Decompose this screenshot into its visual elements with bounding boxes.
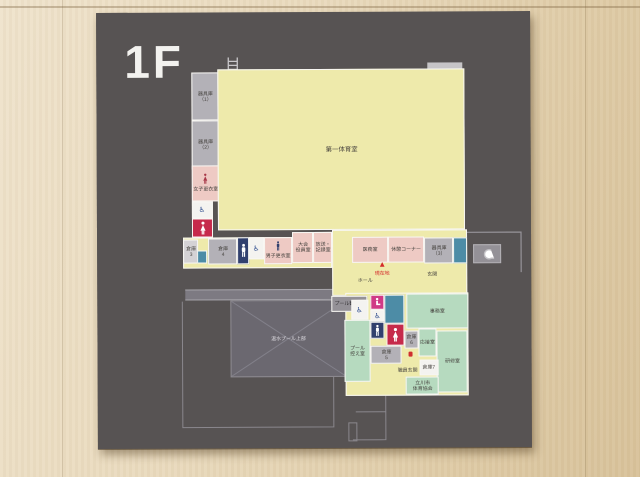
room-broadcast: 放送・記録室 [313, 232, 332, 263]
male-icon [374, 324, 380, 336]
male-icon [275, 241, 281, 251]
room-office: 事務室 [406, 293, 468, 328]
hall-label: ホール [358, 277, 373, 283]
wall-seam-left [62, 0, 63, 477]
room-mens-locker: 男子更衣室 [264, 237, 292, 264]
female-icon [198, 221, 206, 235]
stairs-block-east [453, 237, 467, 263]
accessible-toilet-south: ♿ [249, 237, 264, 259]
you-are-here-marker: ▲ 現在地 [369, 261, 395, 278]
room-equipment-3: 器具庫（3） [424, 237, 453, 263]
womens-toilet-west [192, 218, 213, 237]
you-are-here-triangle: ▲ [378, 261, 386, 269]
staff-entrance-label: 職員玄関 [398, 367, 418, 373]
room-storage-5: 倉庫5 [371, 346, 402, 364]
entrance-label: 玄関 [427, 271, 437, 277]
pool-upper-void: 温水プール上部 [230, 300, 346, 378]
pool-upper-label: 温水プール上部 [271, 336, 306, 342]
floor-label: 1F [124, 35, 184, 89]
wheelchair-icon: ♿ [357, 306, 363, 313]
room-equipment-1: 器具庫（1） [191, 72, 218, 120]
room-training: 研修室 [436, 330, 467, 392]
wheelchair-icon: ♿ [253, 245, 259, 252]
wall-seam-horizontal [0, 6, 640, 8]
room-rest-corner: 休憩コーナー [388, 237, 424, 263]
room-storage-6: 倉庫6 [404, 331, 418, 349]
you-are-here-label: 現在地 [375, 270, 390, 276]
room-pool-anteroom: プール控え室 [344, 320, 370, 382]
pool-walkway [185, 289, 345, 301]
stairs-block-wing [384, 295, 404, 324]
wheelchair-icon: ♿ [374, 312, 380, 319]
room-womens-locker: 女子更衣室 [192, 165, 219, 201]
female-icon [391, 327, 399, 342]
mens-toilet-wing [370, 322, 384, 339]
nursing-room [370, 295, 384, 310]
wheelchair-icon: ♿ [199, 206, 205, 213]
room-equipment-2: 器具庫（2） [192, 120, 219, 169]
spiral-feature-icon [476, 247, 498, 261]
fire-extinguisher-marker [409, 352, 413, 357]
accessible-toilet-west: ♿ [192, 201, 213, 218]
room-officials: 大会役員室 [292, 232, 313, 263]
accessible-toilet-wing-2: ♿ [370, 310, 384, 322]
accessible-toilet-wing-1: ♿ [351, 300, 368, 320]
wall-seam-right [585, 0, 586, 477]
mens-toilet-west [237, 237, 249, 264]
room-first-gym: 第一体育室 [217, 68, 465, 230]
stairs-block-west [197, 250, 207, 263]
womens-toilet-wing [386, 324, 404, 346]
male-icon [240, 243, 247, 258]
room-storage-3: 倉庫3 [183, 240, 198, 264]
photo-of-floor-sign: { "sign": { "floor_label": "1F", "you_ar… [0, 0, 640, 477]
room-storage-7: 倉庫7 [420, 359, 439, 375]
nursing-icon [374, 298, 381, 307]
exterior-feature-box [473, 244, 501, 263]
gym-label: 第一体育室 [325, 146, 357, 153]
room-sports-association: 立川市体育協会 [406, 376, 439, 394]
floor-plan-panel: 1F 温水プール上部 器具庫（1） 器具庫（2） 女子更衣室 [96, 11, 532, 449]
room-reception: 応接室 [418, 328, 436, 356]
room-storage-4: 倉庫4 [208, 238, 237, 264]
female-icon [202, 173, 209, 184]
